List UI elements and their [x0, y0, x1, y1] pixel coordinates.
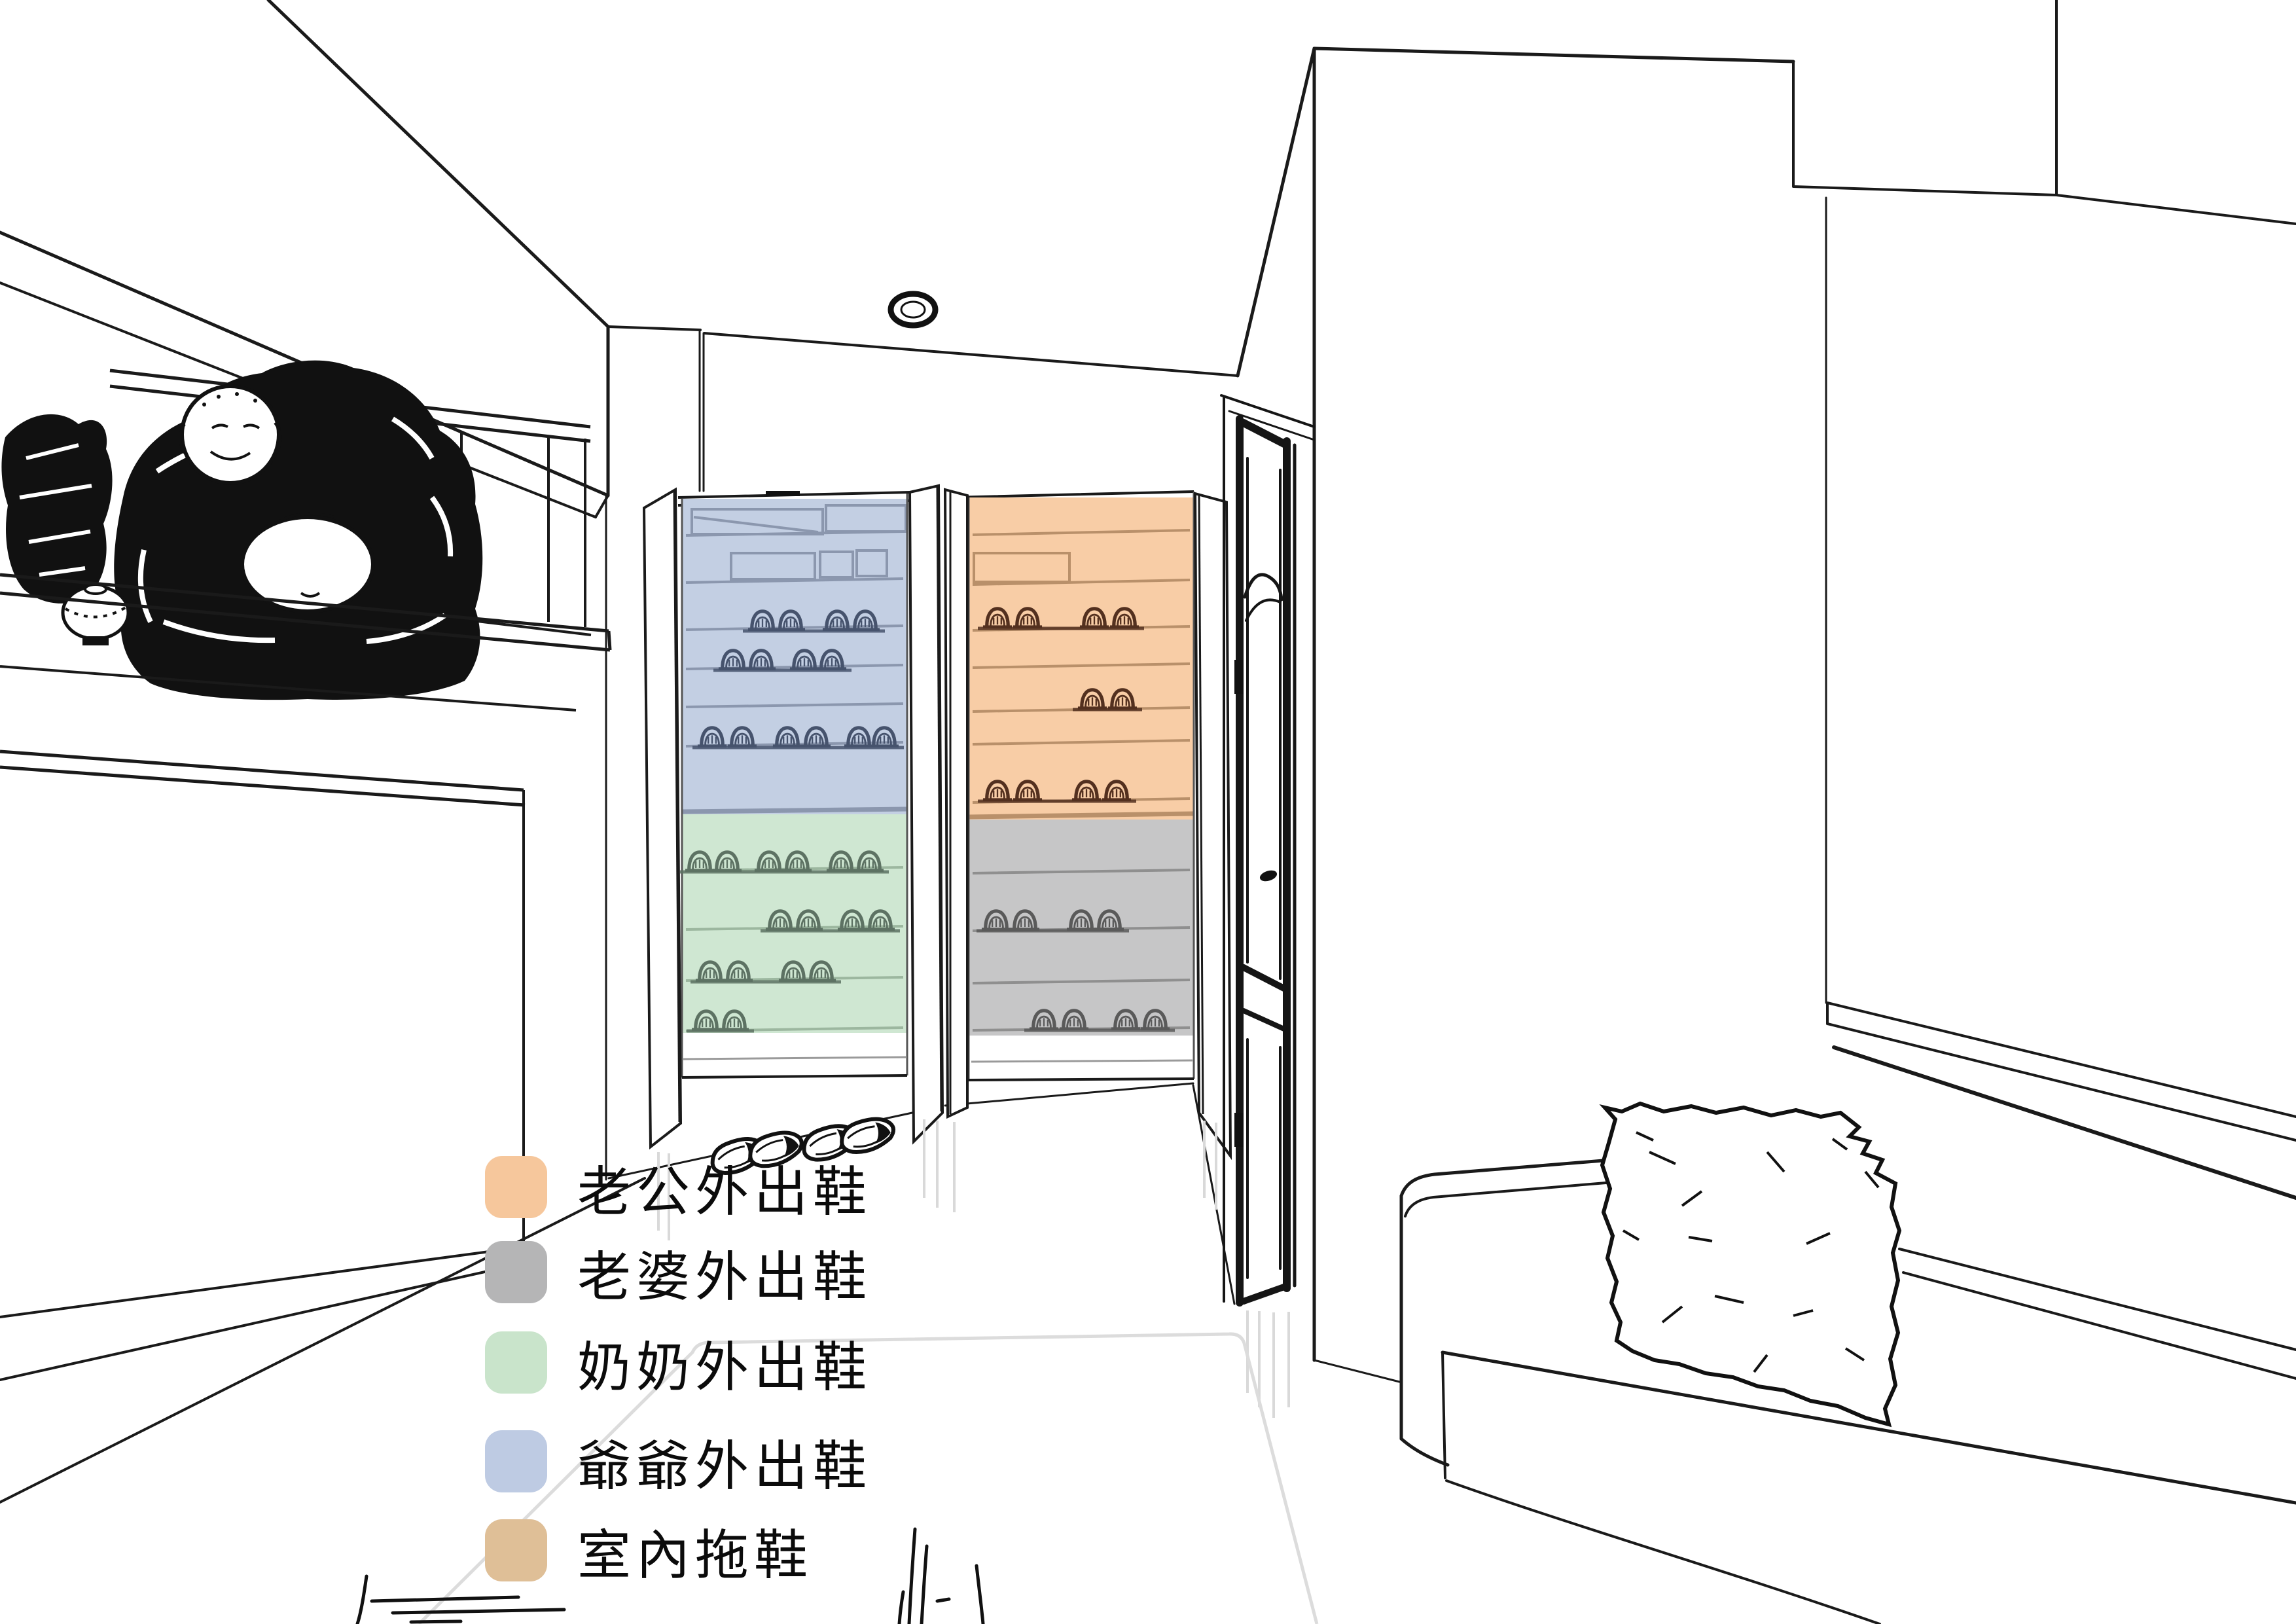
buddha-statue — [1, 361, 482, 700]
ceiling-light-icon — [891, 294, 935, 325]
door-hinge — [1234, 660, 1244, 694]
door-handle — [1259, 869, 1278, 882]
floor-slippers — [708, 1115, 896, 1177]
ghost-table-outline — [419, 1334, 1317, 1624]
husband-section — [969, 497, 1194, 820]
sketch-marks — [357, 1529, 983, 1624]
left-shoe-cabinet — [678, 491, 910, 1077]
door-hinge — [1234, 1113, 1244, 1147]
right-cabinet-left-door — [945, 490, 967, 1117]
entry-door — [1221, 395, 1314, 1303]
interior-rendering: 老公外出鞋 老婆外出鞋 奶奶外出鞋 爺爺外出鞋 室內拖鞋 — [0, 0, 2296, 1624]
pillow — [1602, 1104, 1899, 1424]
buddha-head — [182, 386, 279, 483]
render-canvas — [0, 0, 2296, 1624]
right-shoe-cabinet — [950, 492, 1194, 1080]
